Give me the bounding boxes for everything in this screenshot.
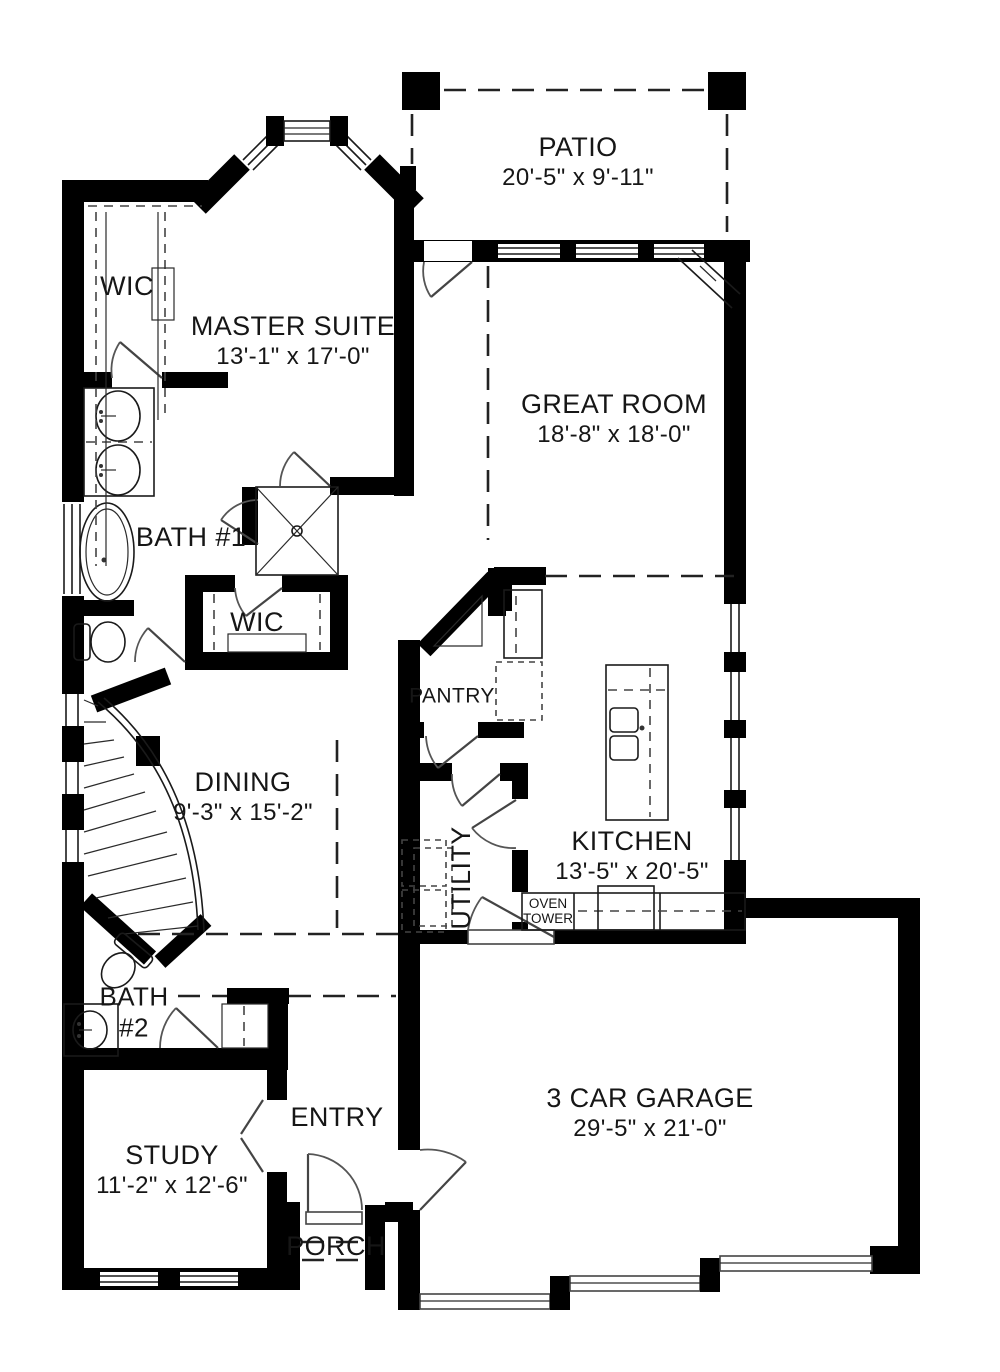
garage-doors — [398, 1256, 872, 1310]
room-label-entry: ENTRY — [290, 1102, 383, 1134]
room-label-bath-2: BATH #2 — [89, 981, 179, 1042]
room-label-oven-tower: OVEN TOWER — [520, 896, 576, 926]
room-label-porch: PORCH — [286, 1231, 386, 1263]
room-label-pantry: PANTRY — [409, 685, 495, 710]
floor-plan: PATIO 20'-5" x 9'-11" MASTER SUITE 13'-1… — [0, 0, 1000, 1372]
room-label-utility: UTILITY — [446, 826, 478, 929]
room-label-master-suite: MASTER SUITE 13'-1" x 17'-0" — [191, 311, 395, 371]
bay-window — [198, 116, 416, 206]
room-label-dining: DINING 9'-3" x 15'-2" — [173, 767, 313, 827]
room-label-study: STUDY 11'-2" x 12'-6" — [96, 1140, 248, 1200]
room-label-bath-1: BATH #1 — [136, 522, 246, 554]
room-label-patio: PATIO 20'-5" x 9'-11" — [502, 132, 654, 192]
room-label-great-room: GREAT ROOM 18'-8" x 18'-0" — [521, 389, 707, 449]
room-label-wic-2: WIC — [230, 607, 284, 639]
room-label-wic-1: WIC — [100, 271, 154, 303]
room-label-kitchen: KITCHEN 13'-5" x 20'-5" — [555, 826, 709, 886]
room-label-garage: 3 CAR GARAGE 29'-5" x 21'-0" — [546, 1083, 753, 1143]
